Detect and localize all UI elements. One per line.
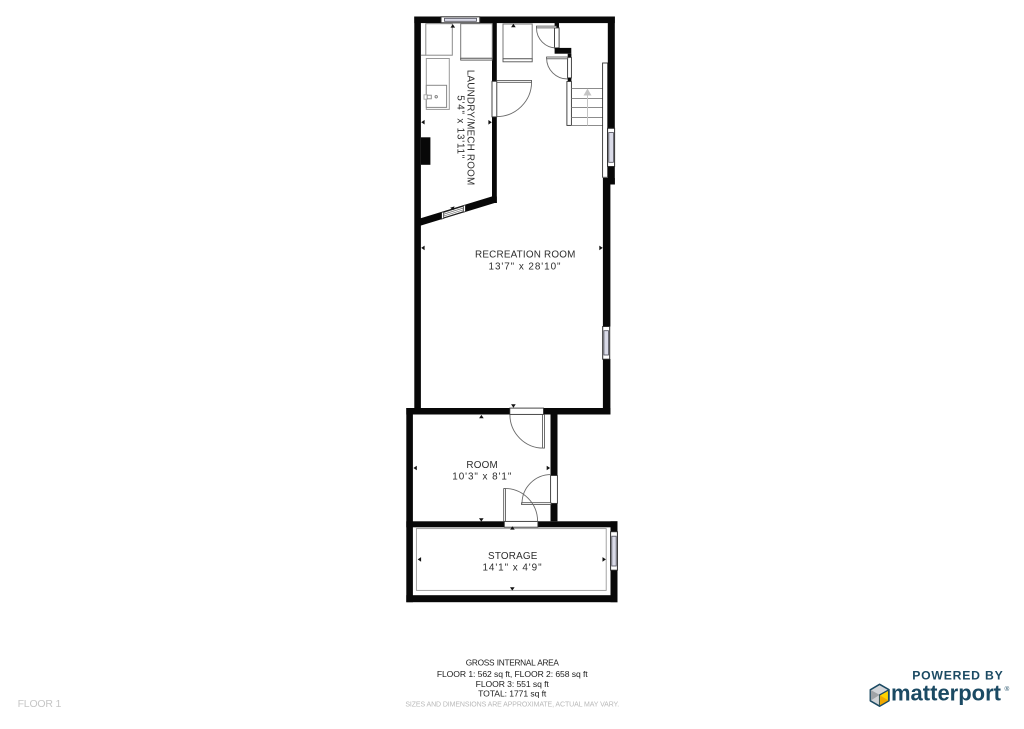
svg-text:FLOOR 1: FLOOR 1 [18, 698, 62, 710]
svg-text:STORAGE: STORAGE [488, 551, 538, 562]
svg-text:14'1" x 4'9": 14'1" x 4'9" [482, 562, 542, 573]
svg-text:ROOM: ROOM [466, 460, 498, 471]
svg-text:RECREATION ROOM: RECREATION ROOM [475, 250, 575, 261]
svg-text:TOTAL: 1771 sq ft: TOTAL: 1771 sq ft [478, 689, 547, 699]
svg-text:GROSS INTERNAL AREA: GROSS INTERNAL AREA [466, 658, 560, 668]
svg-text:FLOOR 3: 551 sq ft: FLOOR 3: 551 sq ft [476, 679, 550, 689]
svg-text:®: ® [1005, 685, 1010, 693]
svg-text:SIZES AND DIMENSIONS ARE APPRO: SIZES AND DIMENSIONS ARE APPROXIMATE, AC… [405, 702, 619, 709]
svg-text:13'7" x 28'10": 13'7" x 28'10" [489, 261, 562, 272]
svg-text:10'3" x 8'1": 10'3" x 8'1" [452, 472, 512, 483]
svg-text:5'4" x 13'11": 5'4" x 13'11" [454, 95, 465, 159]
svg-text:FLOOR 1: 562 sq ft, FLOOR 2: 6: FLOOR 1: 562 sq ft, FLOOR 2: 658 sq ft [437, 669, 588, 679]
svg-text:matterport: matterport [891, 681, 1002, 706]
